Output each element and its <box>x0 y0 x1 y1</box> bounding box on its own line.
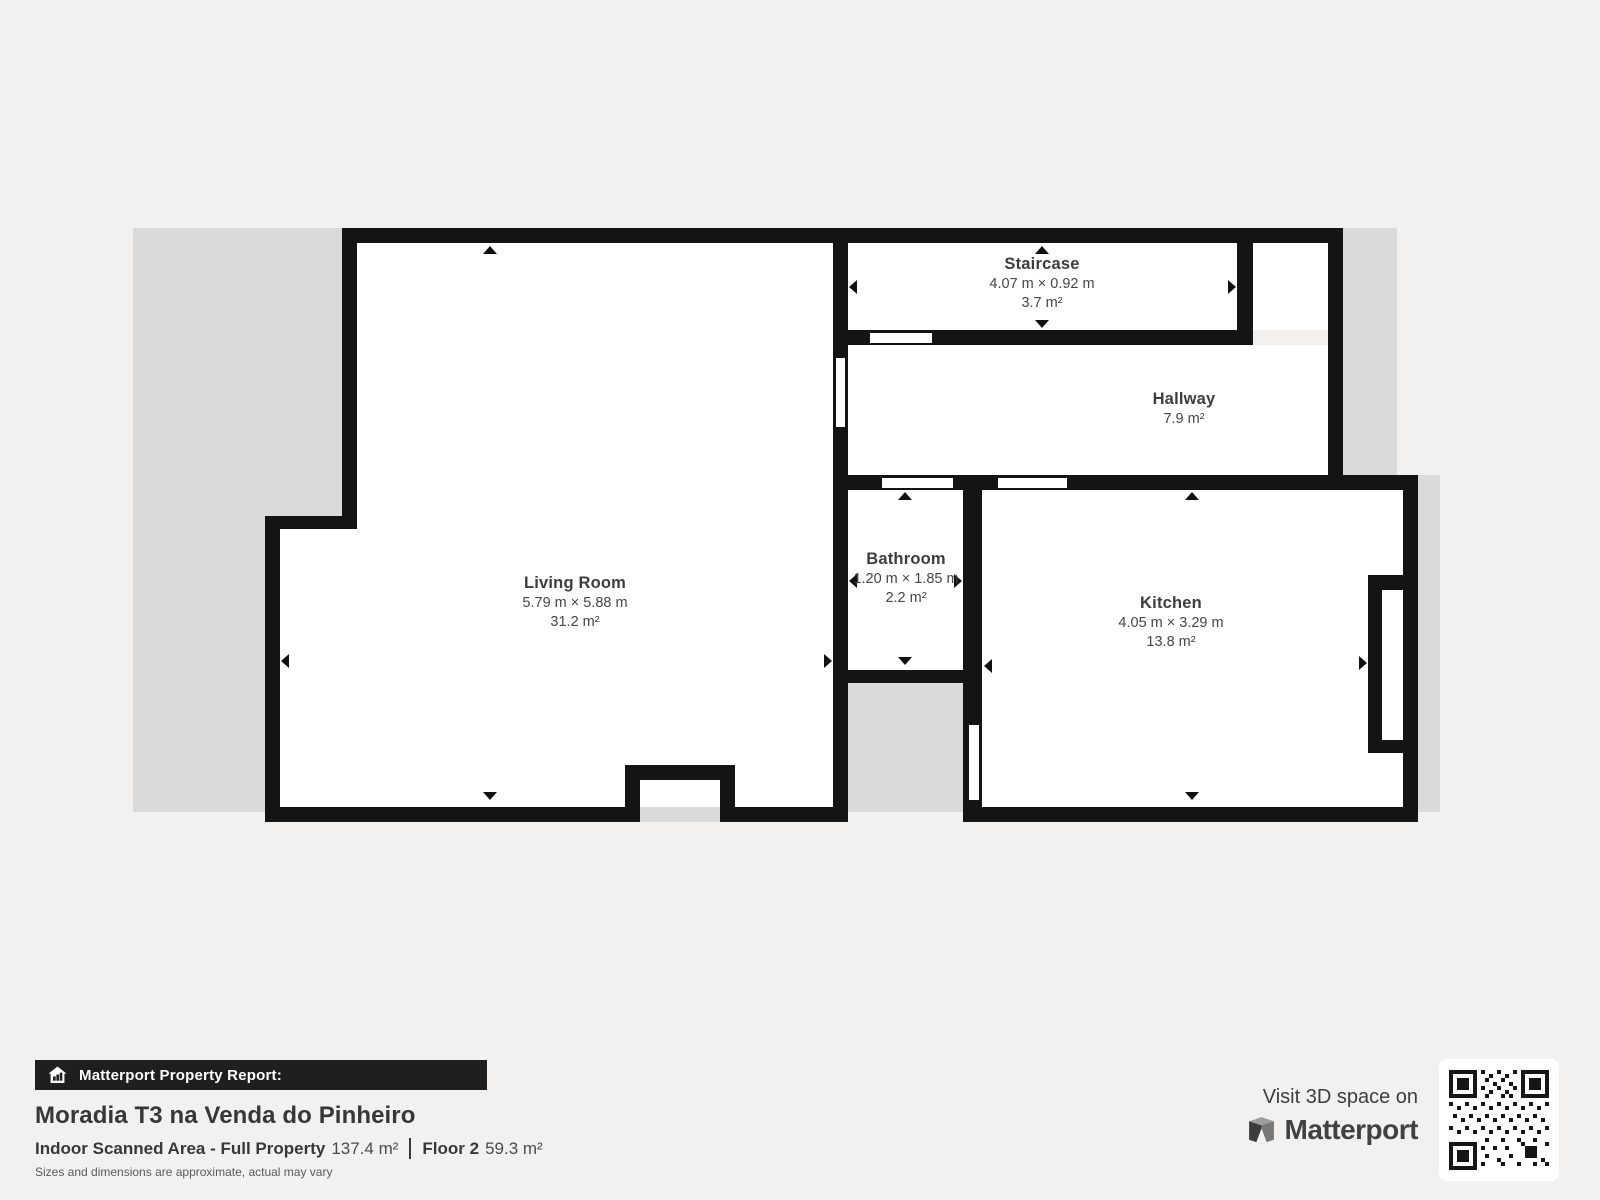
door-staircase <box>870 333 932 343</box>
wall-hallway-right <box>1328 228 1343 488</box>
kitchen-recess-niche <box>1382 590 1403 740</box>
wall-left-upper <box>342 228 357 528</box>
wall-living-right <box>833 228 848 822</box>
dimension-arrow-up-icon <box>1035 246 1049 254</box>
room-area: 3.7 m² <box>989 294 1094 313</box>
visit-3d-cta: Visit 3D space on Matterport <box>1246 1086 1418 1146</box>
dimension-arrow-up-icon <box>1185 492 1199 500</box>
room-dimensions: 4.05 m × 3.29 m <box>1118 614 1223 633</box>
room-label-staircase: Staircase 4.07 m × 0.92 m 3.7 m² <box>989 254 1094 313</box>
disclaimer-text: Sizes and dimensions are approximate, ac… <box>35 1165 332 1179</box>
matterport-logo-icon <box>1246 1115 1277 1146</box>
matterport-wordmark: Matterport <box>1285 1114 1418 1146</box>
dimension-arrow-up-icon <box>483 246 497 254</box>
dimension-arrow-left-icon <box>281 654 289 668</box>
room-name: Hallway <box>1153 389 1216 410</box>
room-dimensions: 1.20 m × 1.85 m <box>853 570 958 589</box>
dimension-arrow-left-icon <box>984 659 992 673</box>
dimension-arrow-down-icon <box>483 792 497 800</box>
dimension-arrow-right-icon <box>1228 280 1236 294</box>
door-living-hallway <box>836 358 845 427</box>
room-label-bathroom: Bathroom 1.20 m × 1.85 m 2.2 m² <box>853 549 958 608</box>
property-report-icon <box>48 1066 67 1084</box>
wall-notch-top <box>625 765 735 780</box>
dimension-arrow-down-icon <box>1185 792 1199 800</box>
qr-code <box>1439 1059 1559 1181</box>
dimension-arrow-up-icon <box>898 492 912 500</box>
room-living-room-extension <box>280 528 357 807</box>
underlay-right-upper <box>1343 228 1397 475</box>
underlay-left-upper <box>133 228 342 516</box>
underlay-left-lower <box>133 516 265 812</box>
door-bathroom <box>882 478 953 488</box>
visit-3d-text: Visit 3D space on <box>1246 1086 1418 1109</box>
dimension-arrow-right-icon <box>1359 656 1367 670</box>
room-name: Kitchen <box>1118 593 1223 614</box>
wall-bottom-mid <box>720 807 848 822</box>
dimension-arrow-down-icon <box>1035 320 1049 328</box>
floor-label: Floor 2 <box>422 1139 479 1159</box>
door-kitchen <box>998 478 1067 488</box>
room-name: Staircase <box>989 254 1094 275</box>
area-info-row: Indoor Scanned Area - Full Property 137.… <box>35 1138 543 1159</box>
floor-area-value: 59.3 m² <box>485 1139 543 1159</box>
room-area: 2.2 m² <box>853 589 958 608</box>
indoor-area-label: Indoor Scanned Area - Full Property <box>35 1139 325 1159</box>
divider <box>409 1138 411 1159</box>
dimension-arrow-right-icon <box>824 654 832 668</box>
report-badge-label: Matterport Property Report: <box>79 1067 282 1084</box>
room-label-living-room: Living Room 5.79 m × 5.88 m 31.2 m² <box>522 573 627 632</box>
floor-plan: Staircase 4.07 m × 0.92 m 3.7 m² Hallway… <box>0 0 1600 1200</box>
underlay-terrace <box>848 683 963 812</box>
room-dimensions: 4.07 m × 0.92 m <box>989 275 1094 294</box>
underlay-right-lower <box>1418 475 1440 812</box>
wall-staircase-right <box>1237 243 1253 330</box>
room-label-hallway: Hallway 7.9 m² <box>1153 389 1216 429</box>
door-kitchen-terrace <box>969 725 979 800</box>
wall-kitchen-bottom <box>966 807 1418 822</box>
report-badge: Matterport Property Report: <box>35 1060 487 1090</box>
wall-bottom-left <box>265 807 640 822</box>
room-name: Living Room <box>522 573 627 594</box>
dimension-arrow-left-icon <box>849 280 857 294</box>
room-dimensions: 5.79 m × 5.88 m <box>522 594 627 613</box>
room-hallway <box>848 345 1328 475</box>
indoor-area-value: 137.4 m² <box>331 1139 398 1159</box>
wall-left-lower <box>265 516 280 822</box>
dimension-arrow-down-icon <box>898 657 912 665</box>
room-area: 31.2 m² <box>522 613 627 632</box>
room-name: Bathroom <box>853 549 958 570</box>
room-area: 7.9 m² <box>1153 410 1216 429</box>
room-area: 13.8 m² <box>1118 633 1223 652</box>
room-living-room <box>357 243 833 807</box>
room-label-kitchen: Kitchen 4.05 m × 3.29 m 13.8 m² <box>1118 593 1223 652</box>
wall-bathroom-bottom <box>848 670 982 683</box>
room-hallway-upper <box>1253 243 1328 330</box>
property-title: Moradia T3 na Venda do Pinheiro <box>35 1102 416 1130</box>
wall-kitchen-right <box>1403 475 1418 822</box>
